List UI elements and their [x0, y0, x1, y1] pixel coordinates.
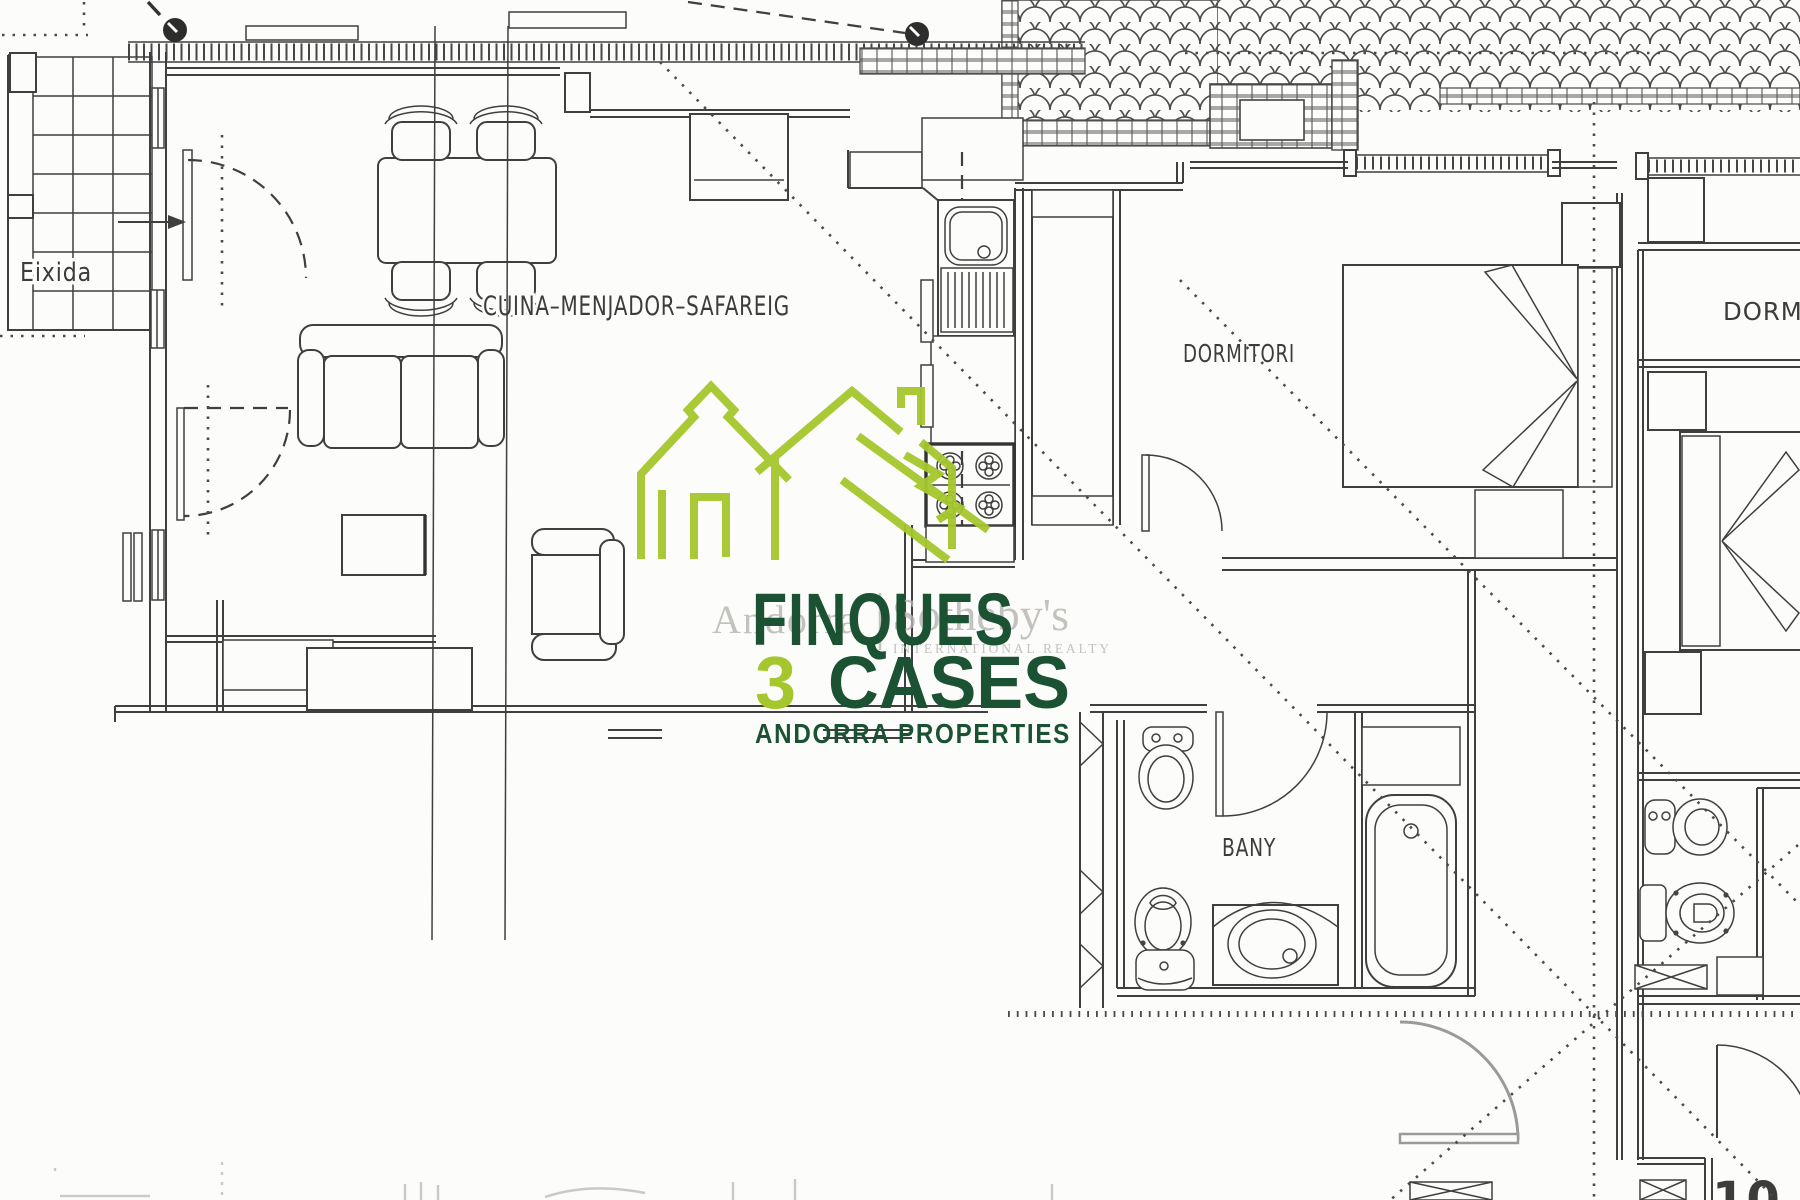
toilet [1135, 888, 1194, 990]
washbasin-vanity [1213, 903, 1338, 986]
sofa [298, 325, 504, 448]
terrace-pillar [10, 53, 36, 92]
nightstand [1562, 203, 1620, 267]
bathroom-label: BANY [1222, 833, 1276, 862]
terrace-label: Eixida [20, 258, 92, 288]
living-kitchen-label: CUINA–MENJADOR–SAFAREIG [483, 291, 790, 322]
coffee-table [342, 515, 425, 575]
sink-drainer [941, 268, 1013, 332]
door-leaf [1216, 712, 1223, 816]
chimney-column [1332, 60, 1358, 150]
bedroom-right-label: DORMITORI [1723, 297, 1800, 326]
toilet [1640, 883, 1734, 943]
door-leaf [1142, 455, 1149, 531]
nightstand [1648, 372, 1706, 430]
logo-number: 3 [755, 641, 796, 724]
door-leaf [1400, 1134, 1518, 1143]
logo-tagline: ANDORRA PROPERTIES [755, 718, 1071, 749]
nightstand [1645, 652, 1701, 714]
floor-plan-canvas: Eixida CUINA–MENJADOR–SAFAREIG DORMITORI… [0, 0, 1800, 1200]
floor-plan-drawing: Eixida CUINA–MENJADOR–SAFAREIG DORMITORI… [0, 0, 1800, 1200]
armchair [532, 529, 624, 660]
terrace-pillar [8, 195, 33, 218]
bedroom-main-label: DORMITORI [1183, 339, 1295, 368]
bed-headboard [1682, 436, 1720, 646]
bidet [1139, 727, 1193, 809]
bathtub [1366, 795, 1456, 987]
bidet [1645, 799, 1727, 855]
bed [1343, 265, 1578, 487]
dining-table [378, 158, 556, 263]
logo-word: CASES [828, 641, 1070, 724]
bed-bench [1475, 490, 1563, 558]
door-leaf [177, 408, 184, 520]
nightstand [1648, 178, 1704, 242]
sideboard [307, 648, 472, 710]
door-leaf [183, 150, 192, 280]
fridge-cabinet [690, 114, 788, 200]
